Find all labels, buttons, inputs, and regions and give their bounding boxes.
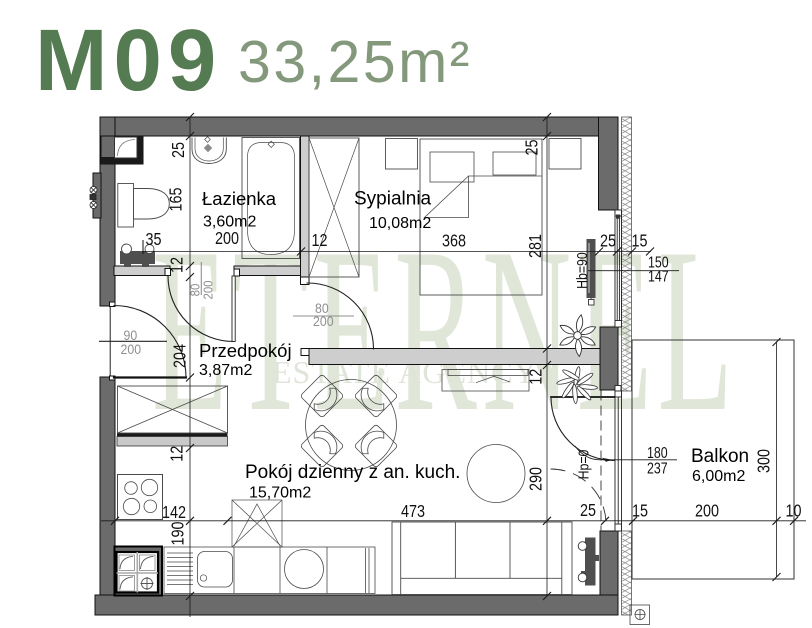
svg-text:290: 290 [526,467,546,491]
svg-text:15: 15 [632,501,648,521]
svg-text:237: 237 [647,459,668,477]
svg-text:473: 473 [401,502,425,522]
svg-text:200: 200 [695,501,719,521]
svg-text:25: 25 [580,501,596,521]
svg-text:142: 142 [162,503,186,523]
svg-text:12: 12 [312,231,328,251]
svg-text:Pokój dzienny z an. kuch.: Pokój dzienny z an. kuch. [245,462,460,483]
svg-text:3,87m2: 3,87m2 [199,362,252,379]
svg-text:200: 200 [313,313,334,329]
svg-text:25: 25 [522,139,542,155]
svg-text:Balkon: Balkon [691,446,749,467]
svg-text:200: 200 [121,341,142,357]
svg-text:10: 10 [786,501,802,521]
svg-text:25: 25 [600,231,616,251]
svg-text:Hb=90: Hb=90 [574,252,590,289]
svg-text:200: 200 [201,280,216,299]
svg-text:Przedpokój: Przedpokój [199,340,292,361]
svg-text:15: 15 [632,231,648,251]
svg-text:6,00m2: 6,00m2 [692,468,745,485]
svg-text:35: 35 [146,230,162,250]
svg-text:204: 204 [170,344,190,368]
svg-text:3,60m2: 3,60m2 [203,214,256,231]
svg-text:281: 281 [526,234,546,258]
svg-text:10,08m2: 10,08m2 [369,215,431,232]
svg-text:300: 300 [754,449,774,473]
svg-text:Hp=0: Hp=0 [576,450,592,480]
svg-text:12: 12 [167,446,187,462]
svg-text:200: 200 [215,229,239,249]
svg-text:Łazienka: Łazienka [202,188,277,209]
svg-text:147: 147 [648,267,669,285]
svg-text:25: 25 [169,142,189,158]
svg-text:15,70m2: 15,70m2 [249,485,311,502]
svg-text:368: 368 [442,231,466,251]
svg-text:165: 165 [166,187,186,211]
svg-text:12: 12 [526,369,546,385]
svg-text:190: 190 [168,521,188,545]
svg-text:Sypialnia: Sypialnia [354,189,432,210]
svg-text:12: 12 [167,257,187,273]
